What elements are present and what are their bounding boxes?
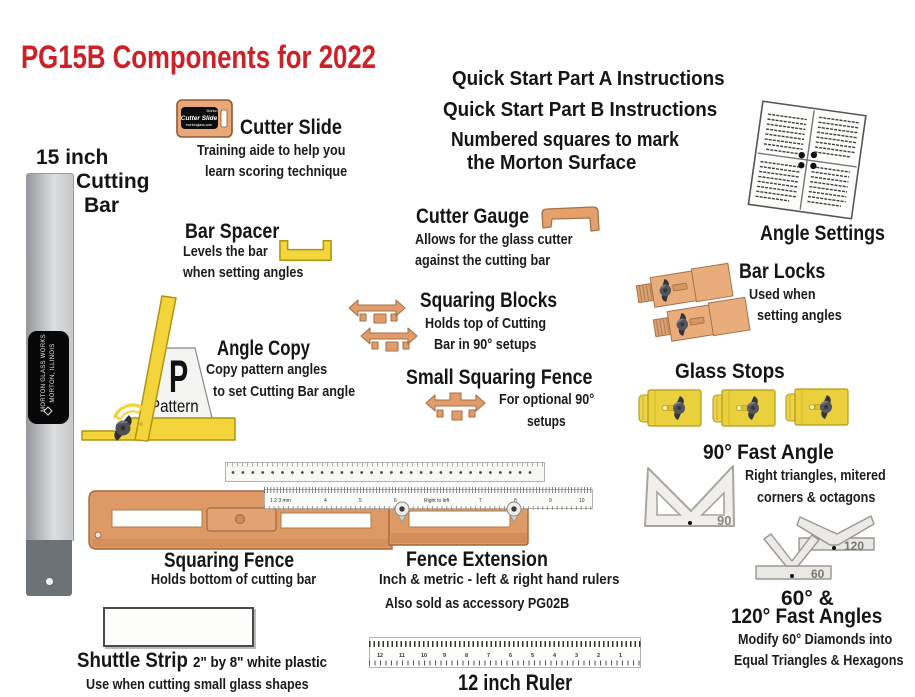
svg-text:9: 9 bbox=[549, 498, 552, 504]
svg-text:mortonglass.com: mortonglass.com bbox=[186, 123, 213, 127]
svg-text:1 2 3 mm: 1 2 3 mm bbox=[270, 498, 291, 504]
svg-text:Morton: Morton bbox=[207, 109, 218, 113]
svg-text:5: 5 bbox=[531, 653, 534, 659]
svg-text:6: 6 bbox=[509, 653, 512, 659]
svg-text:11: 11 bbox=[399, 653, 405, 659]
svg-text:10: 10 bbox=[421, 653, 427, 659]
svg-text:60: 60 bbox=[811, 567, 825, 581]
svg-text:5: 5 bbox=[359, 498, 362, 504]
svg-text:7: 7 bbox=[487, 653, 490, 659]
svg-text:MORTON, ILLINOIS: MORTON, ILLINOIS bbox=[50, 343, 56, 402]
svg-text:8: 8 bbox=[465, 653, 468, 659]
svg-text:9: 9 bbox=[443, 653, 446, 659]
svg-text:4: 4 bbox=[324, 498, 327, 504]
svg-text:Pattern: Pattern bbox=[150, 396, 199, 417]
svg-text:120: 120 bbox=[844, 539, 864, 553]
svg-text:10: 10 bbox=[579, 498, 585, 504]
svg-text:3: 3 bbox=[575, 653, 578, 659]
svg-text:1: 1 bbox=[619, 653, 622, 659]
svg-text:MORTON GLASS WORKS: MORTON GLASS WORKS bbox=[41, 334, 47, 412]
svg-text:Cutter Slide: Cutter Slide bbox=[181, 115, 218, 122]
svg-text:2: 2 bbox=[597, 653, 600, 659]
svg-text:90: 90 bbox=[717, 513, 731, 528]
svg-text:12: 12 bbox=[377, 653, 383, 659]
